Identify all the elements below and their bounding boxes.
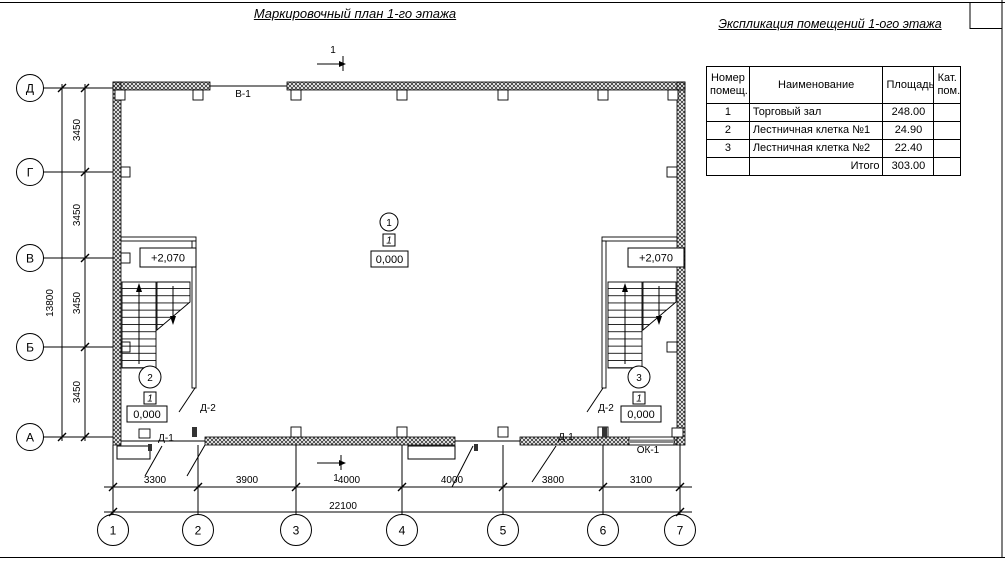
room-name: Лестничная клетка №1 (749, 122, 883, 140)
room-number: 2 (147, 373, 153, 384)
col-header-number: Номер помещ. (707, 67, 750, 104)
col-header-category: Кат. пом. (934, 67, 961, 104)
svg-text:1: 1 (330, 45, 336, 56)
wall-bottom-1 (205, 437, 455, 445)
room-area: 24.90 (883, 122, 934, 140)
stair-door-left-label: Д-2 (200, 403, 216, 414)
axis-bubble: В (26, 252, 34, 266)
porch-left (117, 446, 150, 459)
dim-left-3: 3450 (72, 291, 83, 314)
room-type: 1 (386, 236, 392, 247)
wall-bottom-2 (520, 437, 629, 445)
gate-label: В-1 (235, 89, 251, 100)
total-num (707, 158, 750, 176)
room-number: 3 (636, 373, 642, 384)
room-num: 2 (707, 122, 750, 140)
room-schedule-table: Номер помещ. Наименование Площадь Кат. п… (706, 66, 961, 176)
bottom-dimensions: 3300 3900 4000 4000 3800 3100 22100 (104, 475, 692, 516)
door1-leader (145, 446, 162, 476)
axis-bubble: 5 (500, 524, 507, 538)
table-row: 2 Лестничная клетка №1 24.90 (707, 122, 961, 140)
dim-bottom-2: 3900 (236, 475, 259, 486)
porch-center (408, 446, 455, 459)
table-row: 3 Лестничная клетка №2 22.40 (707, 140, 961, 158)
axis-bubble: Г (27, 166, 34, 180)
entry-door1-label: Д-1 (158, 433, 174, 444)
entry-door2-label: Д-1 (558, 432, 574, 443)
axis-bubble: 7 (677, 524, 684, 538)
room-cat (934, 122, 961, 140)
wall-top-right (287, 82, 685, 90)
room-level: 0,000 (627, 409, 655, 421)
room-area: 22.40 (883, 140, 934, 158)
total-cat (934, 158, 961, 176)
axis-bubble: 4 (399, 524, 406, 538)
dim-bottom-1: 3300 (144, 475, 167, 486)
room-marker-1: 1 1 0,000 (371, 213, 408, 267)
axis-bubble: Д (26, 82, 34, 96)
stair-door-leaf (179, 388, 195, 412)
drawing-sheet: В-1 Д-1 Д-1 Д-2 Д-2 ОК-1 +2,070 +2,070 1… (0, 0, 1005, 565)
col-axes: 1 2 3 4 5 6 7 (98, 445, 696, 546)
stair-door-right-label: Д-2 (598, 403, 614, 414)
room-cat (934, 140, 961, 158)
room-name: Лестничная клетка №2 (749, 140, 883, 158)
door-jamb (602, 427, 607, 437)
dim-bottom-3: 4000 (338, 475, 361, 486)
dim-bottom-4: 4000 (441, 475, 464, 486)
left-dimensions: 3450 3450 3450 3450 13800 (45, 84, 89, 441)
axis-bubble: 2 (195, 524, 202, 538)
axis-bubble: А (26, 431, 34, 445)
room-num: 1 (707, 104, 750, 122)
window-label: ОК-1 (637, 445, 660, 456)
dim-bottom-total: 22100 (329, 501, 357, 512)
dim-left-4: 3450 (72, 380, 83, 403)
room-marker-3: 3 1 0,000 (621, 366, 661, 422)
room-level: 0,000 (376, 254, 404, 266)
dim-bottom-6: 3100 (630, 475, 653, 486)
room-type: 1 (147, 394, 153, 405)
room-name: Торговый зал (749, 104, 883, 122)
axis-bubble: 6 (600, 524, 607, 538)
plan-title: Маркировочный план 1-го этажа (180, 6, 530, 21)
dim-left-total: 13800 (45, 289, 56, 317)
room-number: 1 (386, 218, 392, 229)
schedule-title: Экспликация помещений 1-ого этажа (700, 17, 960, 31)
col-header-name: Наименование (749, 67, 883, 104)
axis-bubble: Б (26, 341, 34, 355)
wall-bottom-3 (674, 437, 677, 445)
window-glass (629, 440, 674, 444)
wall-top-left (113, 82, 210, 90)
row-axes: Д Г В Б А (17, 75, 114, 451)
room-area: 248.00 (883, 104, 934, 122)
dim-left-2: 3450 (72, 203, 83, 226)
door1-leaf (187, 445, 205, 476)
room-marker-2: 2 1 0,000 (127, 366, 167, 422)
dim-bottom-5: 3800 (542, 475, 565, 486)
total-area: 303.00 (883, 158, 934, 176)
wall-left (113, 82, 121, 445)
dim-left-1: 3450 (72, 118, 83, 141)
table-header-row: Номер помещ. Наименование Площадь Кат. п… (707, 67, 961, 104)
room-level: 0,000 (133, 409, 161, 421)
frame-corner-box (970, 3, 1002, 29)
total-label: Итого (749, 158, 883, 176)
elevation-right: +2,070 (639, 253, 673, 265)
col-header-area: Площадь (883, 67, 934, 104)
room-num: 3 (707, 140, 750, 158)
table-total-row: Итого 303.00 (707, 158, 961, 176)
table-row: 1 Торговый зал 248.00 (707, 104, 961, 122)
room-type: 1 (636, 394, 642, 405)
axis-bubble: 3 (293, 524, 300, 538)
axis-bubble: 1 (110, 524, 117, 538)
section-marker-top: 1 (317, 45, 346, 71)
room-cat (934, 104, 961, 122)
elevation-left: +2,070 (151, 253, 185, 265)
door-jamb (192, 427, 197, 437)
